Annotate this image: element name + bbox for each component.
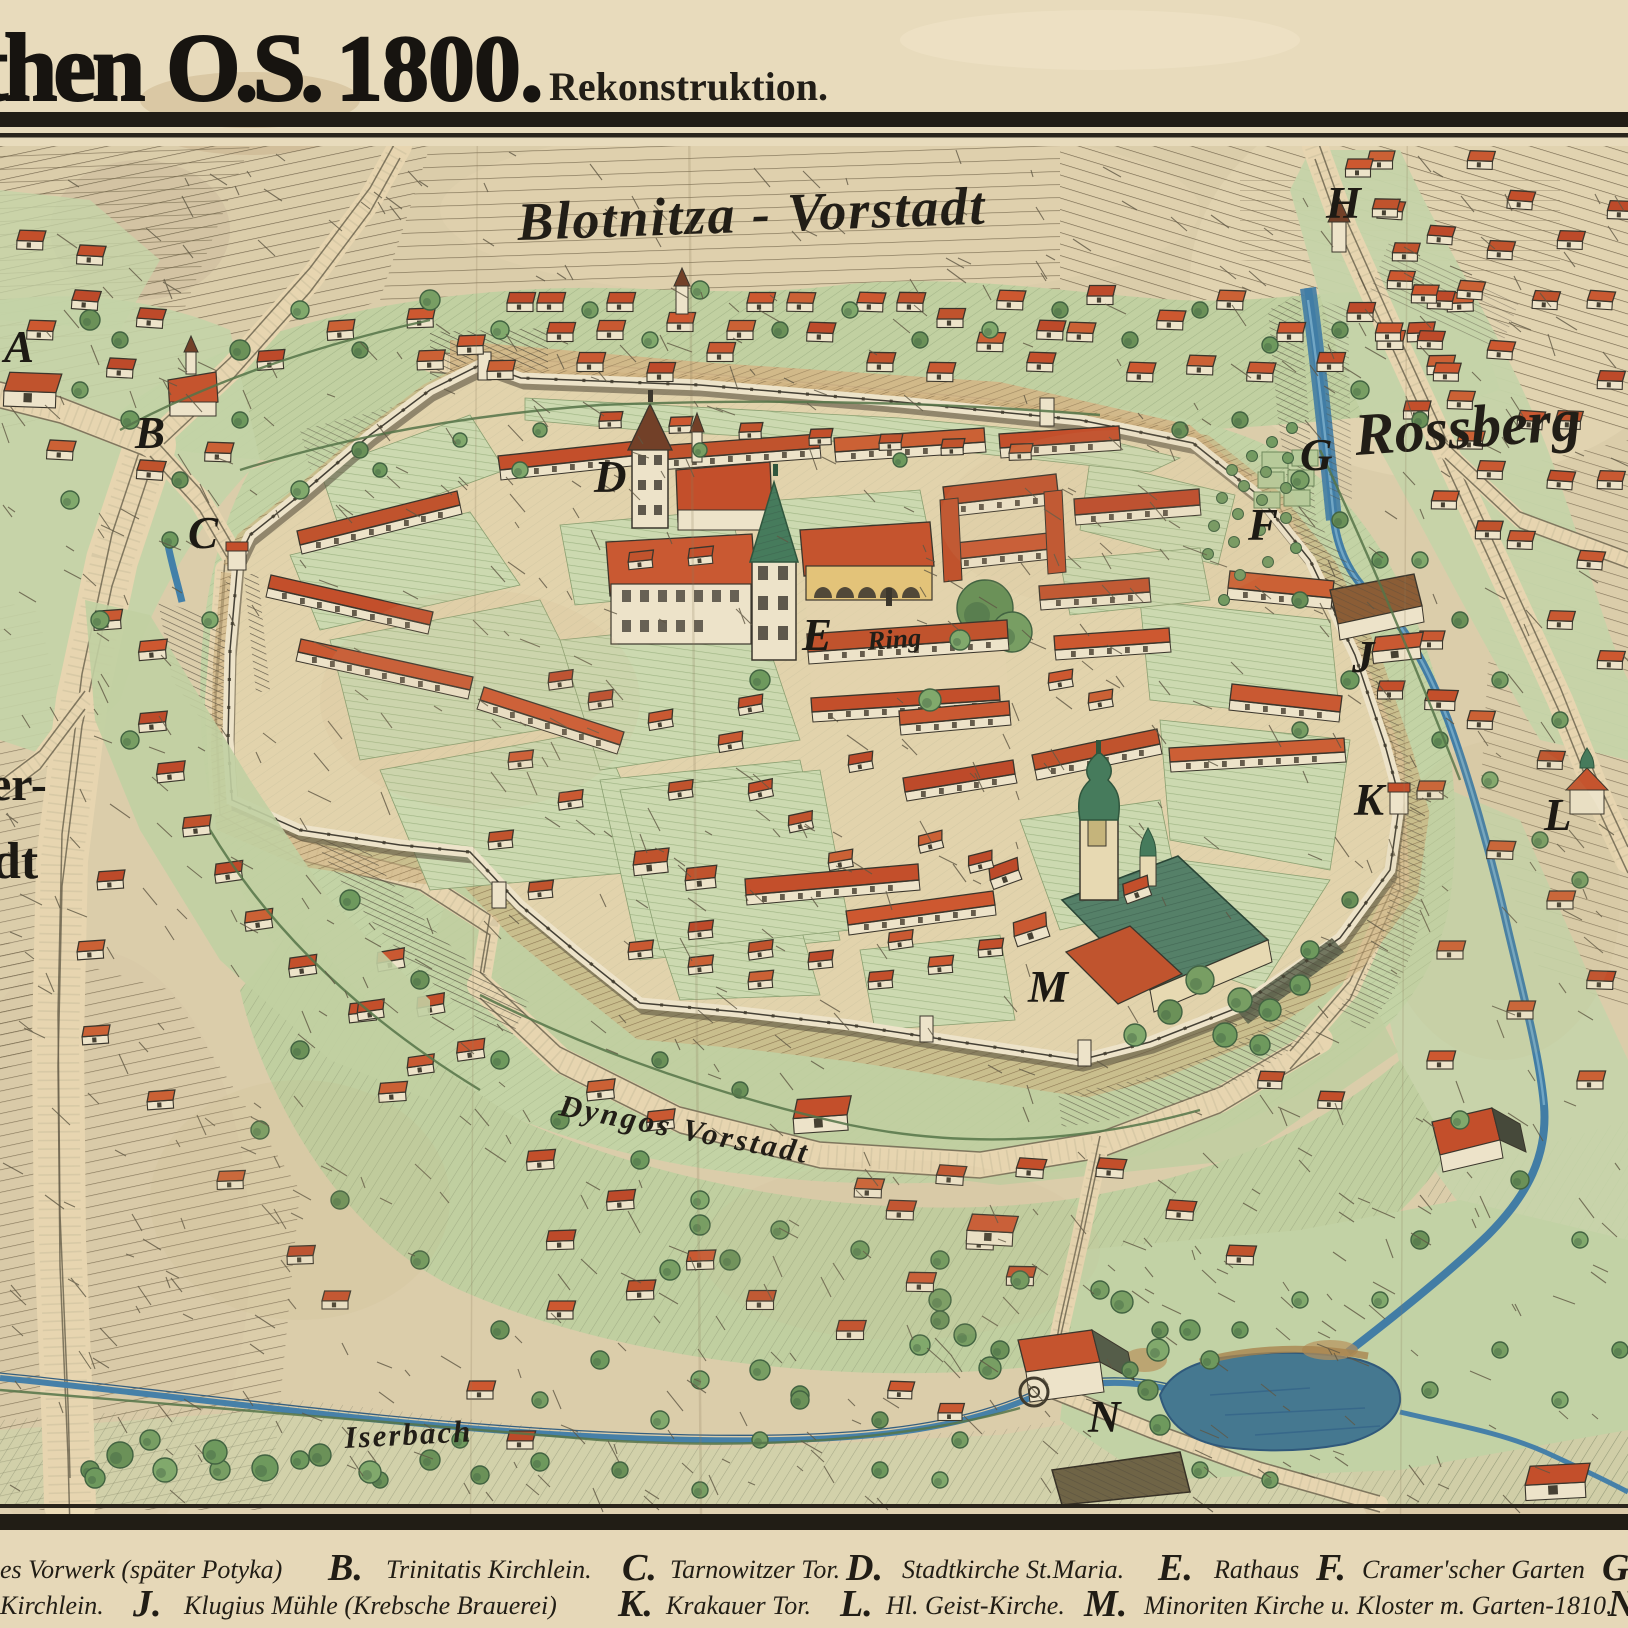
svg-text:D: D — [593, 452, 627, 502]
svg-text:Hl. Geist-Kirche.: Hl. Geist-Kirche. — [885, 1591, 1065, 1620]
svg-text:Tarnowitzer Tor.: Tarnowitzer Tor. — [670, 1555, 840, 1584]
svg-text:Rathaus: Rathaus — [1213, 1555, 1299, 1584]
svg-text:dt: dt — [0, 833, 39, 890]
svg-text:B.: B. — [327, 1547, 363, 1589]
svg-text:N: N — [1087, 1392, 1122, 1442]
svg-text:L.: L. — [839, 1583, 873, 1625]
svg-text:C: C — [188, 508, 219, 558]
svg-text:es Vorwerk (später Potyka): es Vorwerk (später Potyka) — [0, 1555, 282, 1584]
svg-text:then: then — [0, 14, 144, 121]
svg-text:L: L — [1543, 790, 1572, 840]
svg-text:1800.: 1800. — [336, 17, 543, 121]
svg-text:Stadtkirche St.Maria.: Stadtkirche St.Maria. — [902, 1555, 1124, 1584]
svg-text:J: J — [1351, 632, 1376, 682]
svg-text:G: G — [1300, 430, 1333, 480]
svg-text:Krakauer Tor.: Krakauer Tor. — [665, 1591, 811, 1620]
svg-text:M.: M. — [1083, 1583, 1127, 1625]
svg-text:F: F — [1247, 500, 1278, 550]
svg-text:K: K — [1353, 775, 1387, 825]
svg-text:H: H — [1325, 178, 1363, 228]
svg-text:A: A — [1, 322, 34, 372]
svg-text:E: E — [801, 610, 832, 660]
svg-text:F.: F. — [1315, 1547, 1346, 1589]
svg-text:J.: J. — [132, 1583, 162, 1625]
svg-text:Iserbach: Iserbach — [343, 1413, 474, 1455]
svg-text:Cramer'scher Garten: Cramer'scher Garten — [1362, 1555, 1585, 1584]
svg-text:O.S.: O.S. — [166, 14, 320, 121]
svg-text:Minoriten Kirche u. Kloster m.: Minoriten Kirche u. Kloster m. Garten-18… — [1143, 1591, 1612, 1620]
svg-text:Rekonstruktion.: Rekonstruktion. — [549, 64, 828, 109]
svg-text:Ring: Ring — [865, 622, 922, 656]
svg-text:E.: E. — [1157, 1547, 1193, 1589]
svg-text:Kirchlein.: Kirchlein. — [0, 1591, 104, 1620]
svg-text:M: M — [1027, 962, 1070, 1012]
svg-text:er-: er- — [0, 758, 47, 811]
svg-text:Klugius Mühle (Krebsche Brauer: Klugius Mühle (Krebsche Brauerei) — [183, 1591, 557, 1620]
svg-text:N: N — [1607, 1583, 1628, 1625]
svg-text:K.: K. — [617, 1583, 653, 1625]
svg-text:Trinitatis Kirchlein.: Trinitatis Kirchlein. — [386, 1555, 592, 1584]
svg-text:B: B — [134, 408, 165, 458]
